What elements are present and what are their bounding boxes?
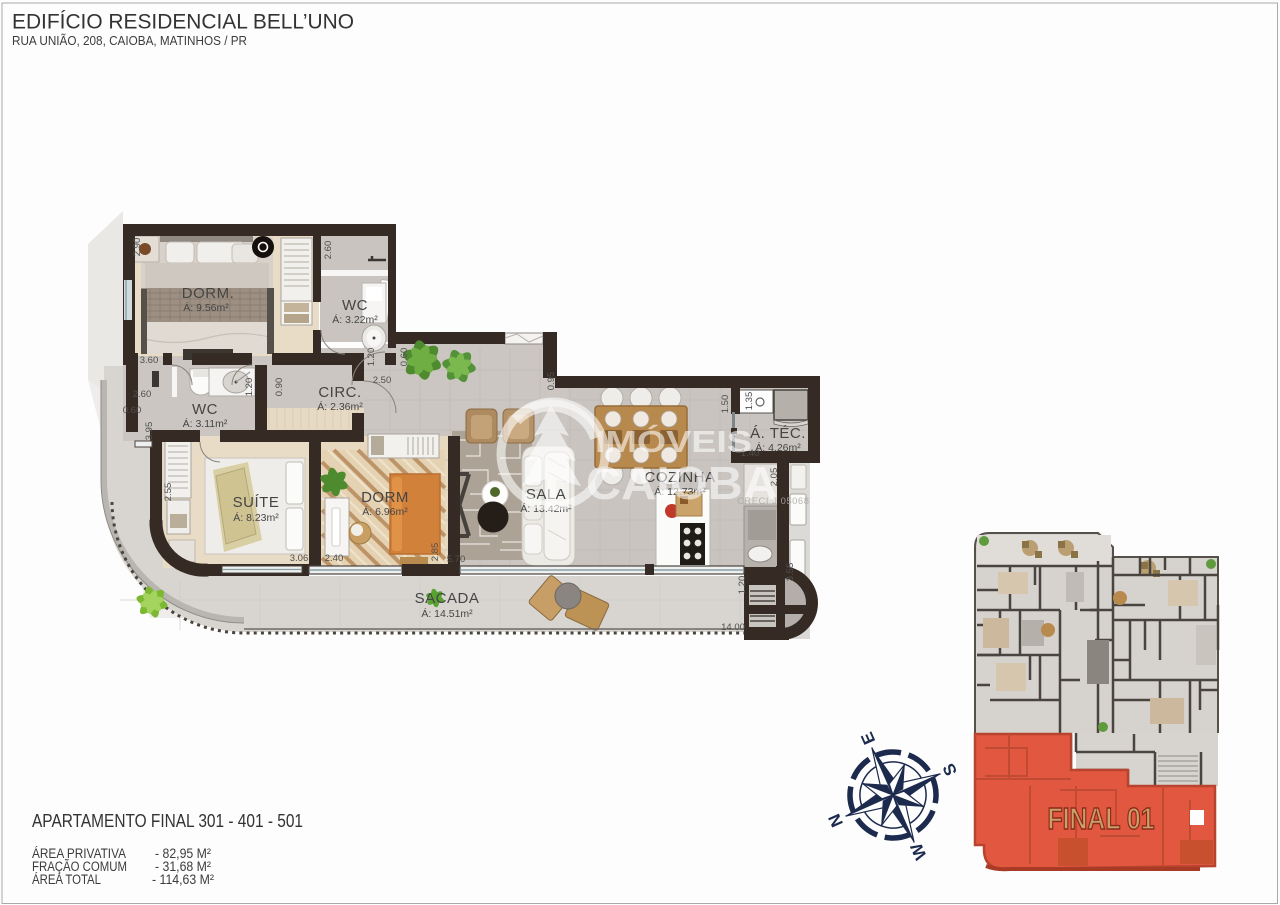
svg-text:Á: 9.56m²: Á: 9.56m²	[183, 301, 229, 314]
svg-text:2.55: 2.55	[163, 483, 174, 502]
svg-text:Á: 3.11m²: Á: 3.11m²	[183, 417, 228, 430]
svg-text:14.00: 14.00	[721, 622, 745, 633]
svg-text:2.60: 2.60	[133, 389, 152, 400]
svg-text:1.35: 1.35	[744, 392, 755, 411]
svg-text:0.90: 0.90	[274, 378, 285, 397]
svg-text:3.95: 3.95	[144, 422, 155, 441]
svg-text:DORM: DORM	[361, 489, 409, 506]
svg-text:Á. TÉC.: Á. TÉC.	[750, 425, 806, 442]
svg-text:Á: 3.22m²: Á: 3.22m²	[332, 313, 378, 326]
svg-text:EDIFÍCIO RESIDENCIAL BELL’UNO: EDIFÍCIO RESIDENCIAL BELL’UNO	[12, 9, 354, 34]
svg-text:APARTAMENTO FINAL 301 - 401 -: APARTAMENTO FINAL 301 - 401 - 501	[32, 810, 303, 831]
svg-text:1.20: 1.20	[366, 348, 377, 367]
svg-text:0.60: 0.60	[399, 348, 410, 367]
svg-text:5.70: 5.70	[447, 554, 466, 565]
svg-text:DORM.: DORM.	[182, 285, 235, 302]
svg-text:3.55: 3.55	[785, 563, 796, 582]
svg-text:WC: WC	[342, 297, 368, 314]
svg-text:2.90: 2.90	[132, 238, 143, 257]
svg-text:3.06: 3.06	[290, 553, 309, 564]
svg-text:Á: 14.51m²: Á: 14.51m²	[421, 607, 473, 620]
svg-text:Á: 8.23m²: Á: 8.23m²	[233, 511, 279, 524]
svg-text:2.85: 2.85	[430, 543, 441, 562]
svg-text:2.60: 2.60	[323, 241, 334, 260]
svg-text:2.40: 2.40	[325, 553, 344, 564]
svg-text:ÁREA TOTAL: ÁREA TOTAL	[32, 872, 101, 887]
svg-text:2.50: 2.50	[373, 375, 392, 386]
svg-text:CIRC.: CIRC.	[318, 384, 361, 401]
svg-text:1.20: 1.20	[244, 378, 255, 397]
svg-text:FINAL 01: FINAL 01	[1048, 801, 1155, 836]
svg-text:Á: 6.96m²: Á: 6.96m²	[362, 505, 408, 518]
svg-text:1.50: 1.50	[720, 395, 731, 414]
svg-text:- 114,63 M²: - 114,63 M²	[152, 872, 214, 887]
svg-text:RUA UNIÃO, 208, CAIOBA, MATINH: RUA UNIÃO, 208, CAIOBA, MATINHOS / PR	[12, 33, 247, 48]
svg-text:IMÓVEIS: IMÓVEIS	[595, 423, 752, 459]
svg-text:SACADA: SACADA	[415, 590, 480, 607]
svg-text:0.95: 0.95	[546, 372, 557, 391]
svg-text:SUÍTE: SUÍTE	[233, 494, 280, 511]
svg-text:Á: 4.26m²: Á: 4.26m²	[755, 441, 801, 454]
svg-text:0.60: 0.60	[123, 405, 142, 416]
svg-text:Á: 2.36m²: Á: 2.36m²	[317, 400, 363, 413]
svg-text:CRECI J 05068: CRECI J 05068	[737, 496, 810, 507]
svg-text:WC: WC	[192, 401, 218, 418]
svg-text:3.60: 3.60	[140, 355, 159, 366]
svg-text:1.20: 1.20	[737, 576, 748, 595]
